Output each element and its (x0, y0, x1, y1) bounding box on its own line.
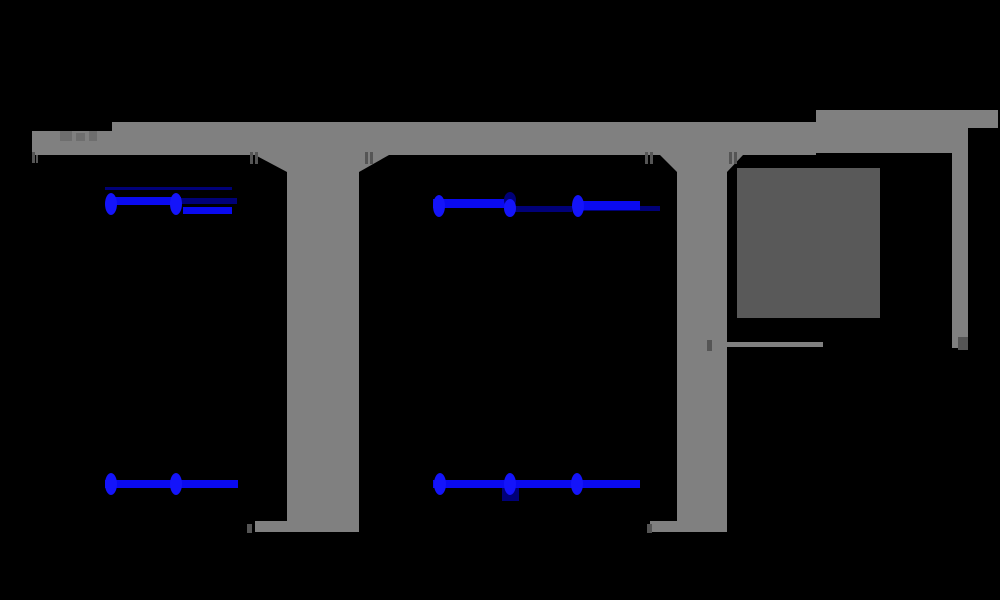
deck-text-smudge-2 (76, 133, 85, 141)
tendon-upper-left-navy-right (181, 198, 237, 204)
tendon-upper-left-bright-mid (107, 197, 181, 205)
dim-tick-pier1r-a (365, 152, 368, 164)
marker-lower-mid-1 (434, 473, 446, 495)
pier1-haunch-left (255, 155, 287, 172)
marker-lower-mid-2 (504, 473, 516, 495)
section-edge-strip (952, 128, 968, 348)
marker-upper-left-2 (170, 193, 182, 215)
marker-upper-mid-3 (572, 195, 584, 217)
deck-text-smudge-3 (89, 131, 97, 141)
title-silhouette (32, 62, 990, 112)
dim-tick-pier2r-a (729, 152, 732, 164)
deck-right-lip (816, 110, 998, 128)
tendon-upper-left-navy-top (105, 187, 232, 190)
marker-lower-left-2 (170, 473, 182, 495)
dim-tick-pier2r-b (734, 152, 737, 164)
diagram-canvas (0, 0, 1000, 600)
section-solid-block (737, 168, 880, 318)
dim-tick-pier2l-a (645, 152, 648, 164)
dim-tick-left-b (36, 155, 38, 163)
marker-lower-left-1 (105, 473, 117, 495)
dim-tick-pier1l-a (250, 152, 253, 164)
dim-tick-pier1r-b (370, 152, 373, 164)
pier2-haunch-left (660, 155, 677, 172)
dim-tick-footing1 (247, 524, 252, 533)
dim-tick-left-a (32, 152, 35, 163)
tendon-upper-mid-navy-a (512, 206, 572, 212)
marker-lower-mid-3 (571, 473, 583, 495)
pier1-footing-line (255, 521, 359, 532)
pier1-shaft (287, 150, 359, 522)
tendon-upper-mid-bright-b (578, 201, 640, 210)
pier1-haunch-right (359, 155, 389, 172)
tendon-lower-mid-line (433, 480, 640, 488)
deck-text-smudge-1 (60, 131, 72, 141)
marker-upper-mid-2 (504, 199, 516, 217)
dim-tick-baseline-left (707, 340, 712, 351)
pier2-shaft (677, 150, 727, 522)
dim-tick-pier1l-b (255, 152, 258, 164)
deck-right-body (816, 126, 968, 153)
pier2-footing-line (650, 521, 727, 532)
tendon-upper-left-bright-low (183, 207, 232, 214)
marker-upper-left-1 (105, 193, 117, 215)
dim-tick-strip-end (958, 337, 968, 350)
dim-tick-pier2l-b (650, 152, 653, 164)
section-base-line (711, 342, 823, 347)
figure-stage (0, 0, 1000, 600)
dim-tick-footing2 (647, 524, 652, 533)
marker-upper-mid-1 (433, 195, 445, 217)
